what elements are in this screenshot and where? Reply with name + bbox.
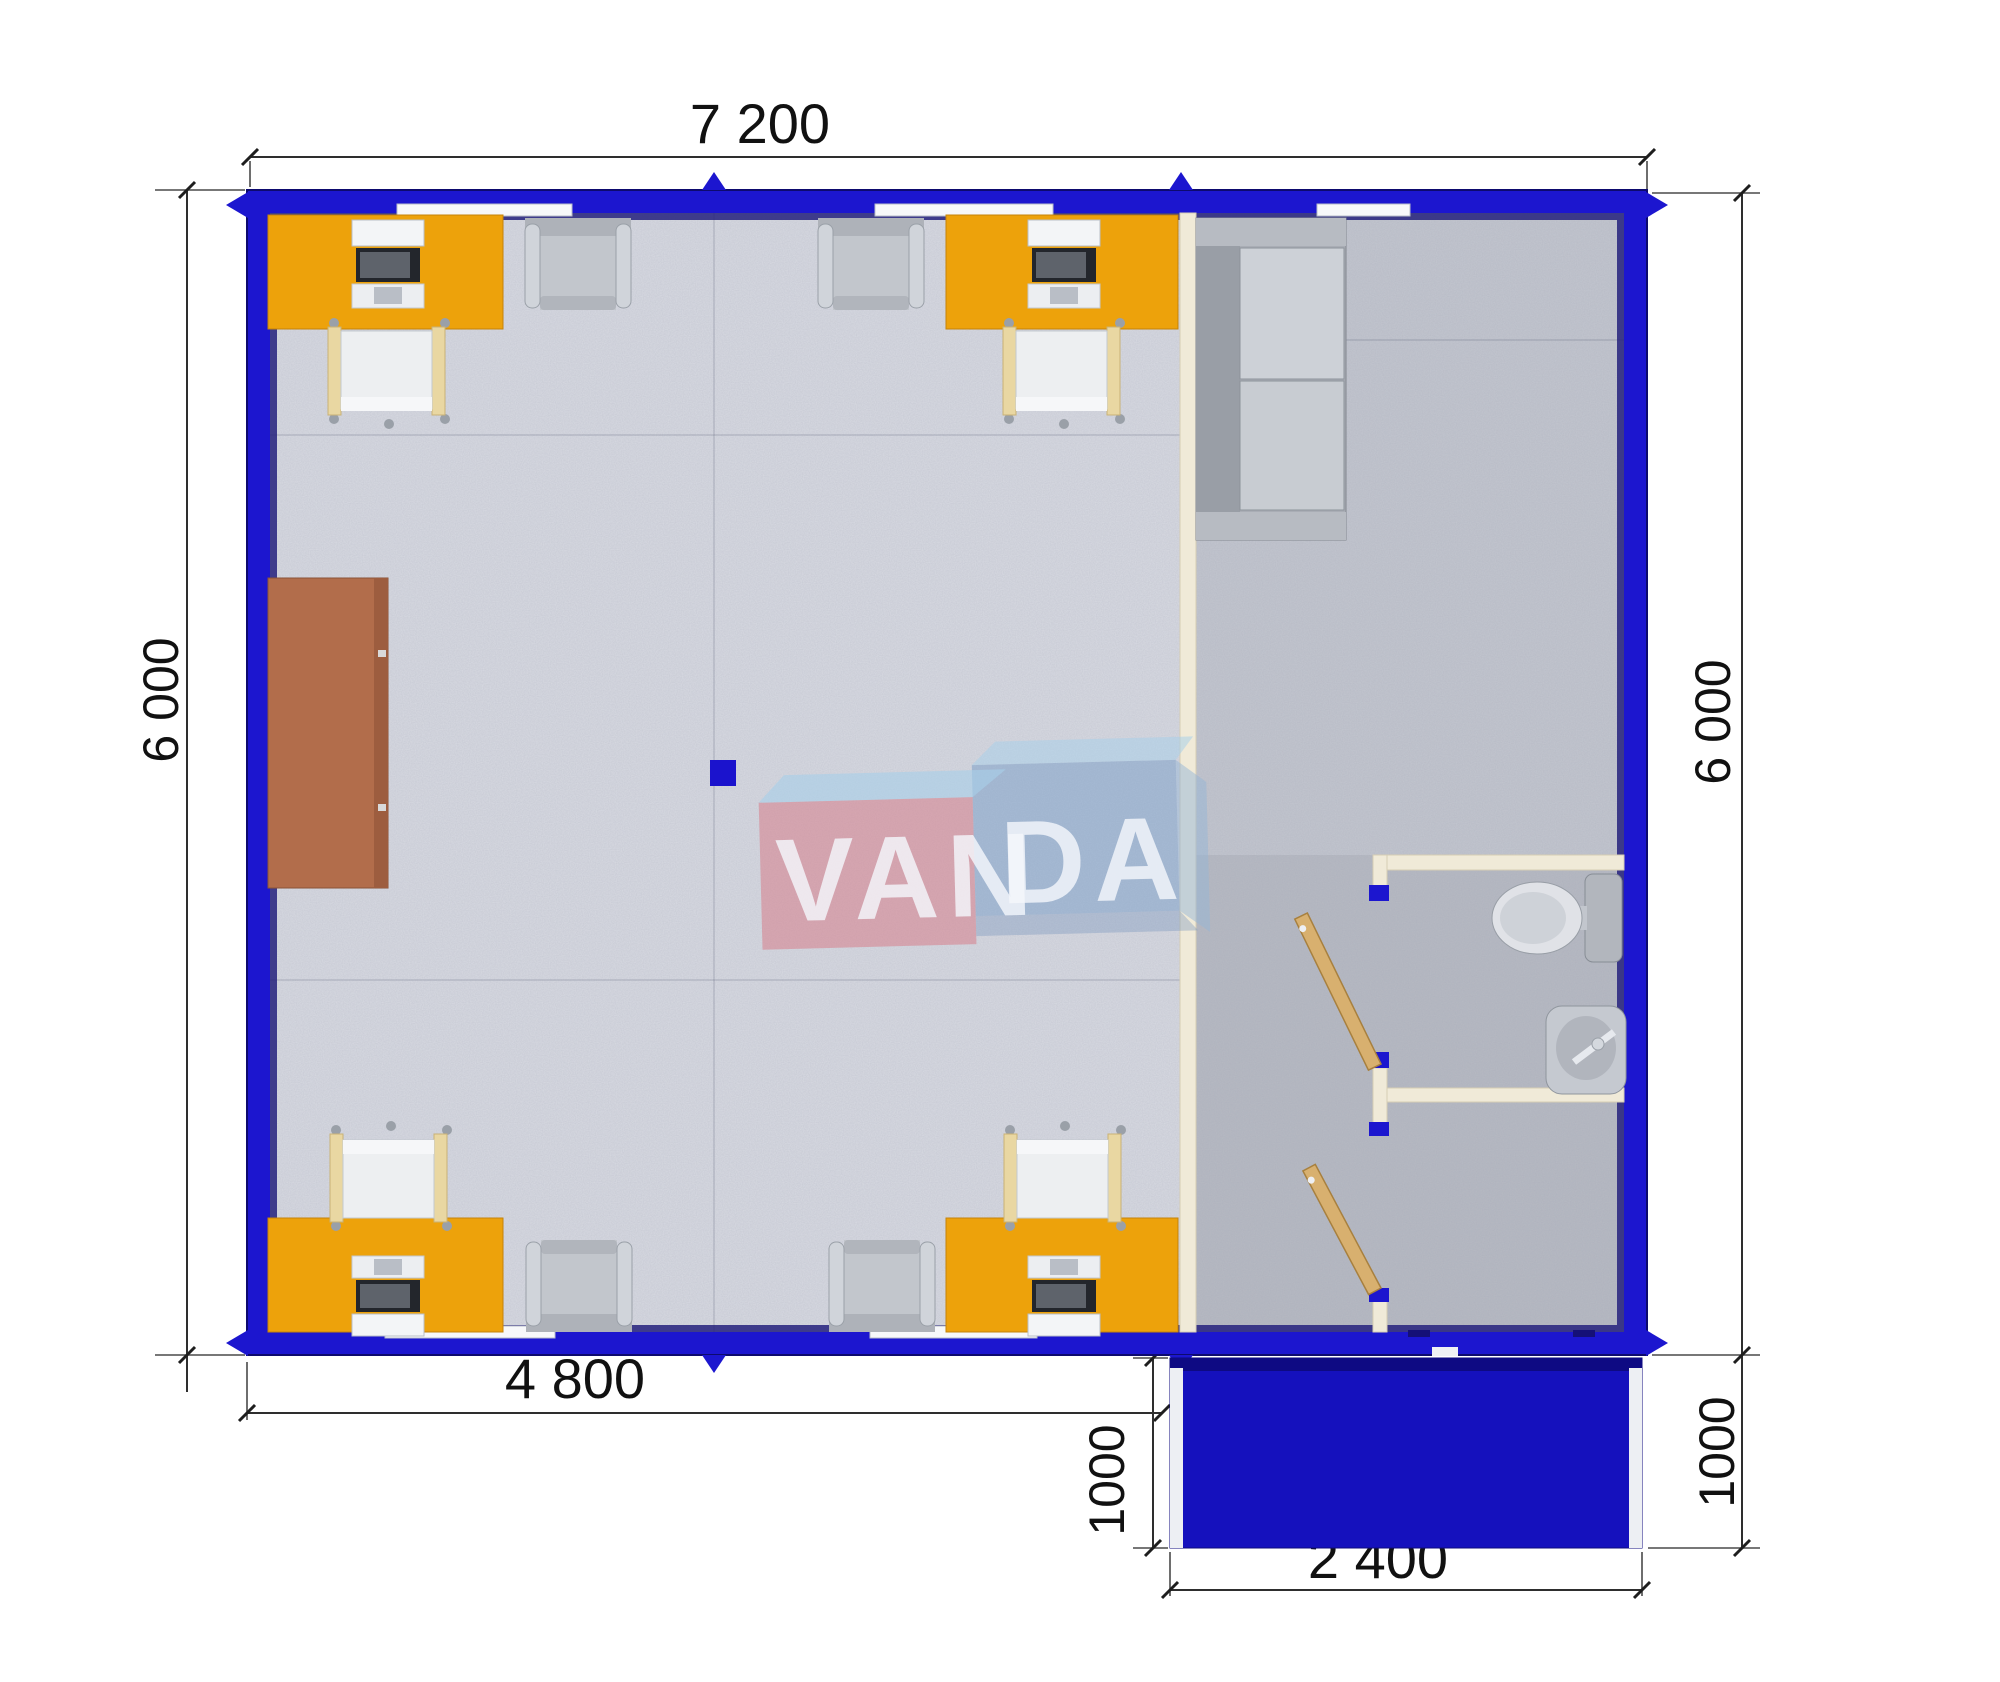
laptop-icon — [352, 220, 424, 308]
door-frame — [1369, 885, 1389, 901]
wash-basin — [1546, 1006, 1626, 1094]
partition-wall — [1373, 855, 1624, 870]
entrance-porch — [1170, 1358, 1642, 1548]
visitor-chair — [525, 218, 631, 310]
visitor-chair — [526, 1240, 632, 1332]
dim-porch-left-label: 1000 — [1079, 1424, 1135, 1535]
visitor-chair — [818, 218, 924, 310]
door-stop-mark — [1408, 1330, 1430, 1337]
door-frame — [1369, 1122, 1389, 1136]
dim-right-label: 6 000 — [1685, 659, 1741, 784]
visitor-chair — [829, 1240, 935, 1332]
dim-porch-right-label: 1000 — [1689, 1396, 1745, 1507]
door-stop-mark — [1573, 1330, 1595, 1337]
storage-cabinet — [268, 578, 388, 888]
porch-post — [1629, 1368, 1642, 1548]
laptop-icon — [352, 1256, 424, 1336]
dim-office-label: 4 800 — [505, 1347, 645, 1410]
window — [397, 204, 572, 216]
floor-plan: 7 200 6 000 6 000 1000 4 800 1000 — [0, 0, 2000, 1682]
watermark-text-da: DA — [999, 793, 1189, 930]
floor-marker-square — [710, 760, 736, 786]
partition-wall — [1373, 855, 1387, 887]
window — [1317, 204, 1410, 216]
porch-post — [1170, 1368, 1183, 1548]
floor-plan-page: 7 200 6 000 6 000 1000 4 800 1000 — [0, 0, 2000, 1682]
dim-left-label: 6 000 — [133, 637, 189, 762]
laptop-icon — [1028, 1256, 1100, 1336]
laptop-icon — [1028, 220, 1100, 308]
sofa — [1196, 218, 1346, 540]
dim-top-label: 7 200 — [690, 92, 830, 155]
window — [875, 204, 1053, 216]
entrance-threshold — [1432, 1347, 1458, 1356]
